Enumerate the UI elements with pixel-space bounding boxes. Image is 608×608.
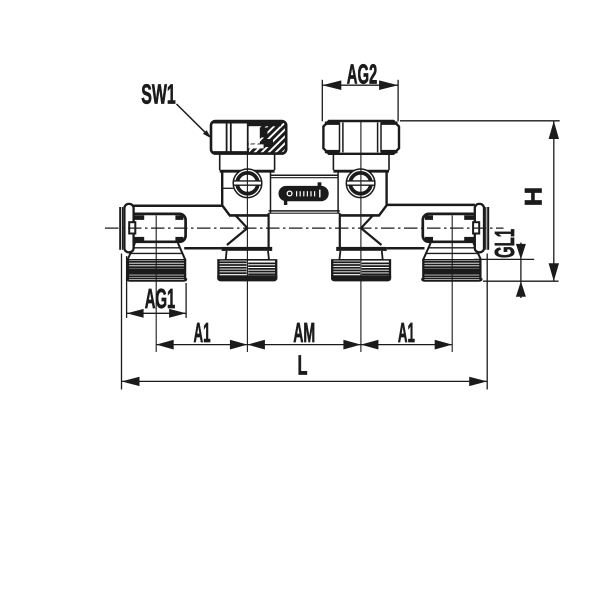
svg-text:H: H [521,187,548,207]
svg-text:A1: A1 [398,317,415,348]
svg-text:AG1: AG1 [145,283,176,314]
svg-text:AG2: AG2 [347,58,378,89]
svg-text:SW1: SW1 [141,79,176,110]
svg-text:A1: A1 [194,317,211,348]
svg-text:AM: AM [293,317,315,348]
svg-text:GL1: GL1 [489,229,520,258]
svg-text:L: L [298,349,308,380]
